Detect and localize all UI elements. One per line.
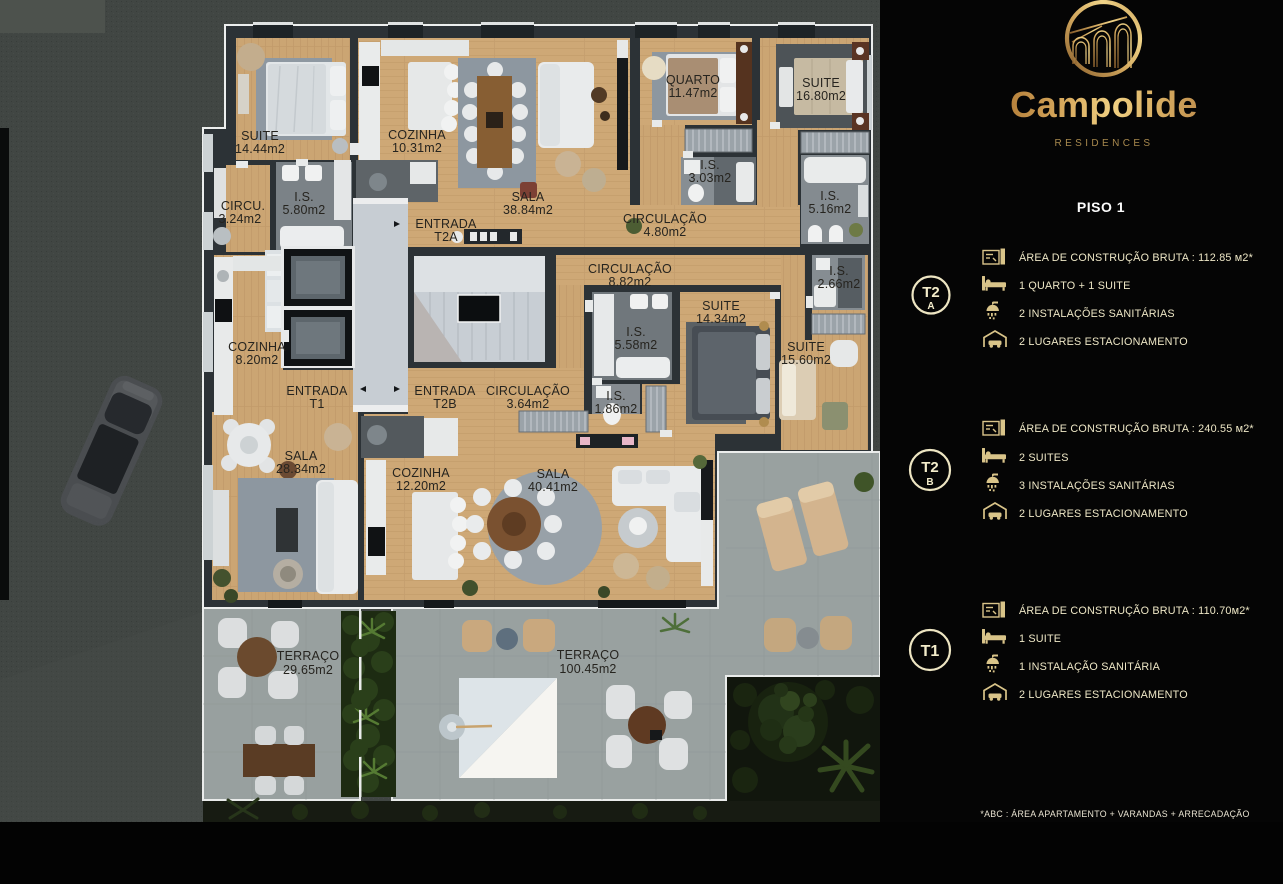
svg-text:11.47m2: 11.47m2 — [668, 86, 717, 100]
svg-text:SALA: SALA — [285, 449, 318, 463]
svg-text:28.34m2: 28.34m2 — [276, 462, 326, 476]
svg-text:CIRCULAÇÃO: CIRCULAÇÃO — [588, 262, 672, 276]
svg-text:A: A — [927, 301, 934, 312]
svg-text:14.44m2: 14.44m2 — [235, 142, 285, 156]
svg-text:QUARTO: QUARTO — [666, 73, 720, 87]
svg-text:T2: T2 — [921, 459, 939, 476]
svg-text:ENTRADA: ENTRADA — [414, 384, 476, 398]
svg-text:I.S.: I.S. — [626, 325, 646, 339]
svg-text:5.80m2: 5.80m2 — [283, 203, 326, 217]
svg-text:2 LUGARES ESTACIONAMENTO: 2 LUGARES ESTACIONAMENTO — [1019, 336, 1188, 348]
svg-text:3.03m2: 3.03m2 — [689, 171, 732, 185]
svg-text:ENTRADA: ENTRADA — [286, 384, 348, 398]
svg-text:RESIDENCES: RESIDENCES — [1054, 138, 1153, 149]
svg-text:4.80m2: 4.80m2 — [644, 225, 687, 239]
svg-text:CIRCU.: CIRCU. — [221, 199, 265, 213]
svg-text:T2A: T2A — [434, 230, 458, 244]
svg-text:3 INSTALAÇÕES SANITÁRIAS: 3 INSTALAÇÕES SANITÁRIAS — [1019, 479, 1175, 492]
svg-text:1.86m2: 1.86m2 — [595, 402, 638, 416]
svg-text:I.S.: I.S. — [820, 189, 840, 203]
svg-text:PISO 1: PISO 1 — [1077, 199, 1125, 215]
svg-text:B: B — [926, 477, 933, 488]
svg-text:I.S.: I.S. — [294, 190, 314, 204]
svg-text:29.65m2: 29.65m2 — [283, 663, 333, 677]
svg-text:100.45m2: 100.45m2 — [559, 662, 616, 676]
svg-text:SALA: SALA — [512, 190, 545, 204]
svg-text:T2B: T2B — [433, 397, 457, 411]
svg-text:ÁREA DE CONSTRUÇÃO BRUTA : 11: ÁREA DE CONSTRUÇÃO BRUTA : 112.85 м2* — [1019, 251, 1254, 264]
svg-text:T1: T1 — [921, 643, 940, 660]
svg-text:COZINHA: COZINHA — [388, 128, 446, 142]
svg-text:SUITE: SUITE — [802, 76, 840, 90]
svg-text:T1: T1 — [310, 397, 325, 411]
svg-text:1 SUITE: 1 SUITE — [1019, 633, 1061, 645]
svg-text:I.S.: I.S. — [700, 158, 720, 172]
svg-text:Campolide: Campolide — [1010, 84, 1198, 125]
svg-text:10.31m2: 10.31m2 — [392, 141, 442, 155]
svg-text:12.20m2: 12.20m2 — [396, 479, 446, 493]
svg-text:COZINHA: COZINHA — [228, 340, 286, 354]
svg-text:40.41m2: 40.41m2 — [528, 480, 578, 494]
svg-text:3.24m2: 3.24m2 — [219, 212, 262, 226]
svg-text:SUITE: SUITE — [787, 340, 825, 354]
svg-text:SALA: SALA — [537, 467, 570, 481]
svg-text:2 LUGARES ESTACIONAMENTO: 2 LUGARES ESTACIONAMENTO — [1019, 689, 1188, 701]
svg-text:16.80m2: 16.80m2 — [796, 89, 846, 103]
svg-text:*ABC : ÁREA APARTAMENTO + VAR: *ABC : ÁREA APARTAMENTO + VARANDAS + ARR… — [980, 809, 1249, 819]
svg-text:SUITE: SUITE — [241, 129, 279, 143]
svg-text:1 QUARTO + 1 SUITE: 1 QUARTO + 1 SUITE — [1019, 280, 1131, 292]
svg-text:8.82m2: 8.82m2 — [609, 275, 652, 289]
svg-text:T2: T2 — [922, 284, 940, 301]
svg-text:5.58m2: 5.58m2 — [615, 338, 658, 352]
svg-text:5.16m2: 5.16m2 — [809, 202, 852, 216]
svg-text:CIRCULAÇÃO: CIRCULAÇÃO — [486, 384, 570, 398]
svg-text:2 SUITES: 2 SUITES — [1019, 452, 1069, 464]
svg-text:I.S.: I.S. — [606, 389, 626, 403]
svg-text:2.66m2: 2.66m2 — [818, 277, 861, 291]
svg-text:1 INSTALAÇÃO SANITÁRIA: 1 INSTALAÇÃO SANITÁRIA — [1019, 660, 1161, 673]
svg-text:CIRCULAÇÃO: CIRCULAÇÃO — [623, 212, 707, 226]
svg-text:ENTRADA: ENTRADA — [415, 217, 477, 231]
svg-text:TERRAÇO: TERRAÇO — [557, 648, 620, 662]
svg-text:SUITE: SUITE — [702, 299, 740, 313]
svg-text:ÁREA DE CONSTRUÇÃO BRUTA : 24: ÁREA DE CONSTRUÇÃO BRUTA : 240.55 м2* — [1019, 422, 1254, 435]
svg-text:I.S.: I.S. — [829, 264, 849, 278]
svg-text:2 LUGARES ESTACIONAMENTO: 2 LUGARES ESTACIONAMENTO — [1019, 508, 1188, 520]
svg-text:38.84m2: 38.84m2 — [503, 203, 553, 217]
svg-text:COZINHA: COZINHA — [392, 466, 450, 480]
svg-text:2 INSTALAÇÕES SANITÁRIAS: 2 INSTALAÇÕES SANITÁRIAS — [1019, 307, 1175, 320]
svg-text:8.20m2: 8.20m2 — [236, 353, 279, 367]
svg-text:ÁREA DE CONSTRUÇÃO BRUTA : 11: ÁREA DE CONSTRUÇÃO BRUTA : 110.70м2* — [1019, 604, 1250, 617]
svg-text:14.34m2: 14.34m2 — [696, 312, 746, 326]
svg-text:15.60m2: 15.60m2 — [781, 353, 831, 367]
svg-text:3.64m2: 3.64m2 — [507, 397, 550, 411]
svg-text:TERRAÇO: TERRAÇO — [277, 649, 340, 663]
